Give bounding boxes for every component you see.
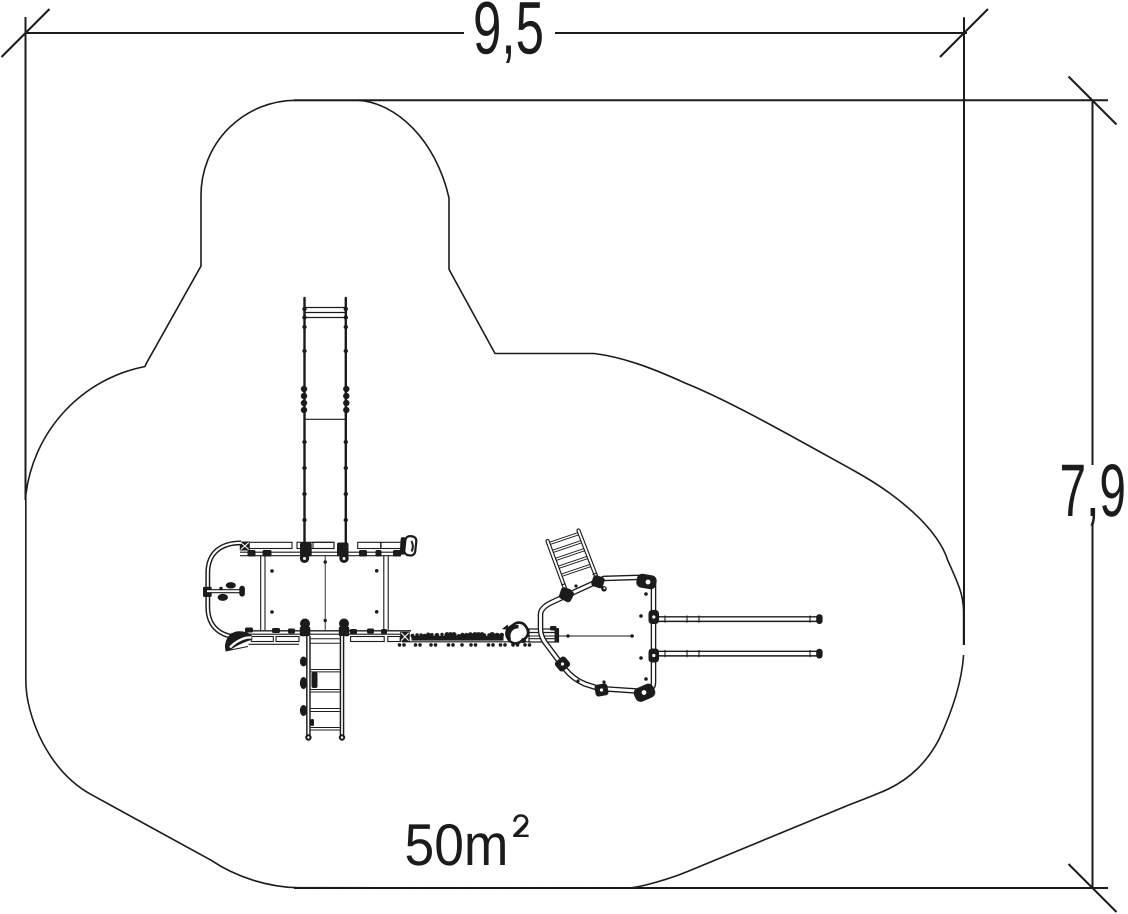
svg-text:7,9: 7,9 bbox=[1060, 449, 1126, 532]
svg-text:50m: 50m bbox=[404, 812, 508, 878]
svg-text:9,5: 9,5 bbox=[473, 0, 544, 69]
